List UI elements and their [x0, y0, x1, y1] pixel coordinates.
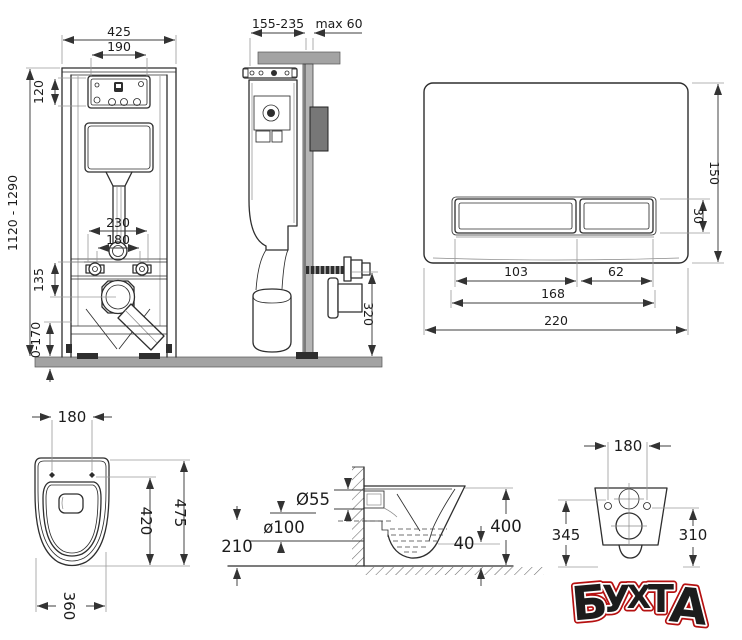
cistern-side-profile: [249, 80, 297, 250]
hanger-plate: [243, 68, 297, 78]
flush-plate-outline: [424, 83, 688, 263]
foot-plate-left: [77, 353, 98, 359]
rear-outlet-bump: [619, 545, 642, 558]
dim-outlet-height: 320: [361, 302, 376, 326]
dim-rear-right-height: 310: [679, 526, 708, 544]
dim-panel-width: 190: [107, 39, 131, 54]
wall-top-section: [258, 52, 340, 64]
foot-plate-right: [139, 353, 160, 359]
foot-lock-right: [166, 344, 172, 353]
dim-rear-left-height: 345: [552, 526, 581, 544]
technical-drawing-sheet: 425 190 120 1120 - 1290 230 180: [0, 0, 742, 640]
bolt-hole-right: [89, 472, 95, 478]
dim-anchor-inner: 180: [106, 232, 130, 247]
dim-inner-length: 420: [137, 507, 155, 536]
bowl-rear-view: 180 345 310: [552, 437, 708, 567]
bowl-top-dimensions: 180 475 420 360: [32, 408, 190, 620]
access-panel: [88, 76, 150, 108]
wall-bracket: [310, 107, 328, 151]
dim-drain-axis-height: 210: [221, 537, 253, 556]
trap-elbow: [253, 250, 291, 352]
side-foot-plate: [296, 352, 318, 359]
dim-button-height: 30: [691, 208, 706, 224]
bowl-rim: [43, 482, 101, 556]
frame-side-view: 155-235 max 60 320: [243, 16, 378, 359]
rear-bolt-left: [605, 503, 612, 510]
dim-frame-height-range: 1120 - 1290: [5, 175, 20, 251]
dim-anchor-outer: 230: [106, 215, 130, 230]
floor-hatch: [364, 567, 544, 575]
flush-plate-view: 150 30 103 62 168 220: [424, 83, 724, 335]
dim-small-button-width: 62: [608, 264, 624, 279]
anchor-bolt-right: [133, 263, 151, 275]
dim-bolt-spacing-rear: 180: [614, 437, 643, 455]
dim-buttons-width: 168: [541, 286, 565, 301]
dim-plate-height: 150: [707, 161, 722, 185]
dim-bowl-height: 400: [490, 517, 522, 536]
dim-plate-width: 220: [544, 313, 568, 328]
dim-drain-pipe-diameter: ø100: [263, 518, 305, 537]
dim-flush-pipe-diameter: Ø55: [296, 490, 330, 509]
dim-bowl-width: 360: [60, 592, 78, 621]
dim-frame-width: 425: [107, 24, 131, 39]
dim-bolt-spacing-top: 180: [58, 408, 87, 426]
bowl-top-view: 180 475 420 360: [32, 408, 190, 620]
watermark-text: Б У Х Т А: [569, 575, 710, 637]
outlet-fittings: [306, 257, 370, 318]
dim-large-button-width: 103: [504, 264, 528, 279]
bolt-hole-left: [49, 472, 55, 478]
bowl-rear-dimensions: 180 345 310: [552, 437, 708, 567]
foot-lock-left: [66, 344, 72, 353]
flush-outlet-spot: [59, 494, 83, 513]
rear-outline: [595, 488, 667, 545]
dim-wall-max: max 60: [315, 16, 362, 31]
anchor-bolt-left: [86, 263, 104, 275]
bowl-side-view: Ø55 ø100 210 40 400: [221, 467, 544, 586]
svg-text:А: А: [667, 576, 711, 637]
dim-drain-drop: 135: [31, 268, 46, 292]
dim-outer-length: 475: [171, 499, 189, 528]
dim-foot-range: 0-170: [28, 322, 43, 358]
wall-hatch: [352, 467, 364, 566]
dim-rim-gap: 40: [454, 534, 475, 553]
frame-front-view: 425 190 120 1120 - 1290 230 180: [5, 24, 176, 382]
drawing-canvas: 425 190 120 1120 - 1290 230 180: [0, 0, 742, 640]
dim-depth-range: 155-235: [252, 16, 304, 31]
rear-bolt-right: [644, 503, 651, 510]
watermark: Б У Х Т А Б У Х Т А Б У Х Т А: [569, 575, 710, 637]
dim-panel-height: 120: [31, 80, 46, 104]
